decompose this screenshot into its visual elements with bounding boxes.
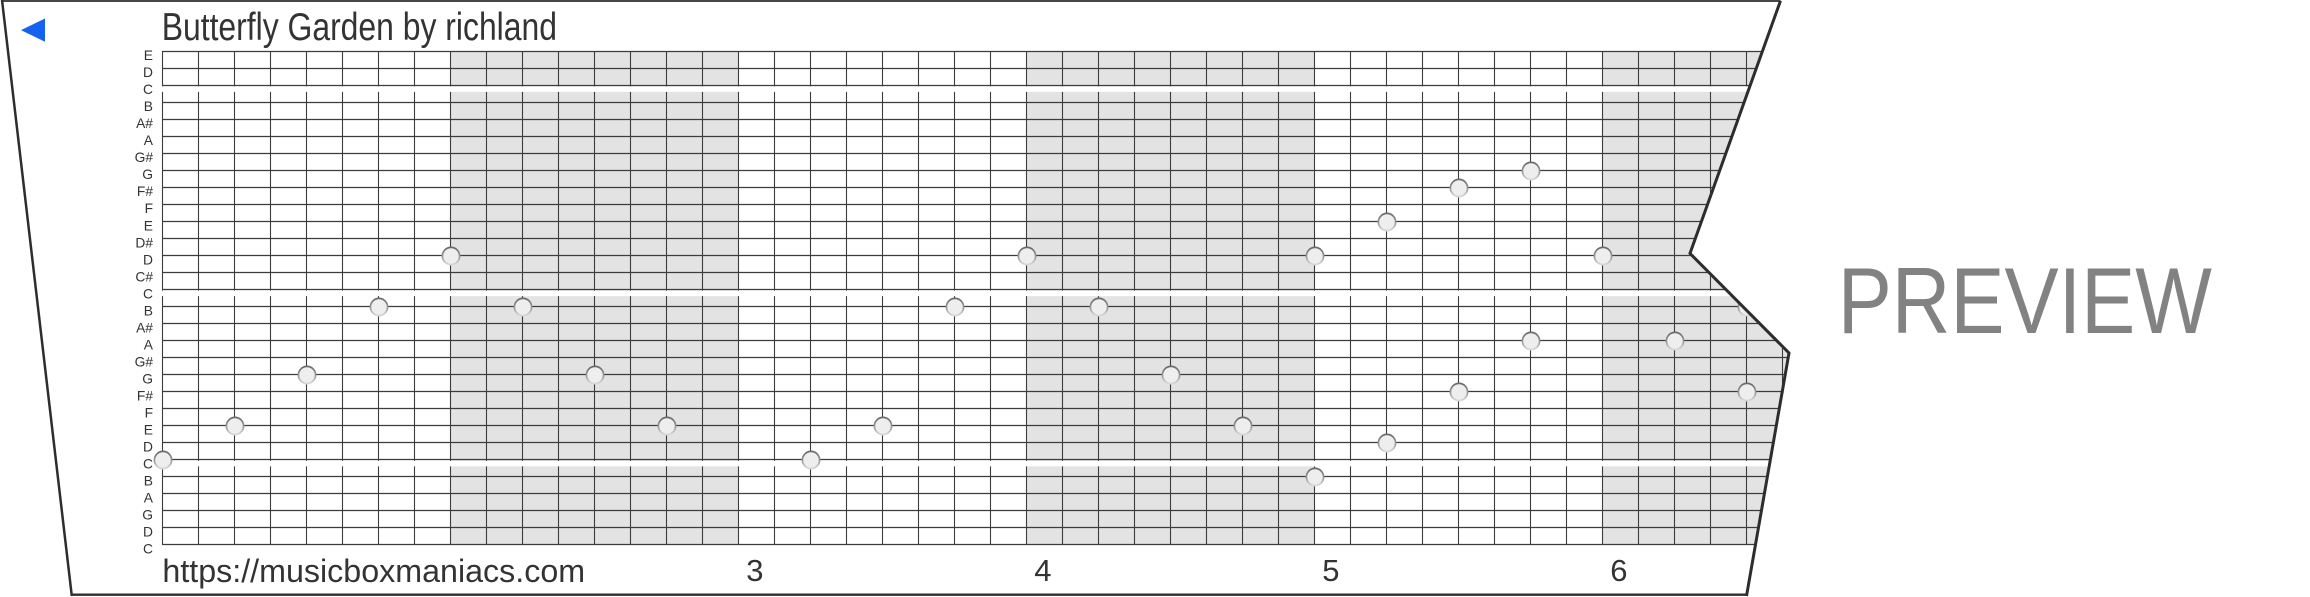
svg-text:A#: A# xyxy=(136,320,153,335)
svg-text:F#: F# xyxy=(137,184,153,199)
svg-text:D: D xyxy=(143,440,153,455)
svg-text:E: E xyxy=(144,218,153,233)
svg-text:C#: C# xyxy=(135,269,153,284)
svg-text:A: A xyxy=(144,337,154,352)
svg-text:Butterfly Garden by richland: Butterfly Garden by richland xyxy=(162,6,557,48)
svg-text:G#: G# xyxy=(135,150,154,165)
svg-text:G: G xyxy=(142,371,153,386)
svg-text:G: G xyxy=(142,508,153,523)
svg-text:C: C xyxy=(143,286,153,301)
svg-text:A: A xyxy=(144,491,154,506)
svg-text:PREVIEW: PREVIEW xyxy=(1838,249,2213,354)
svg-text:A: A xyxy=(144,133,154,148)
svg-text:D: D xyxy=(143,65,153,80)
svg-text:B: B xyxy=(144,303,153,318)
svg-text:6: 6 xyxy=(1610,553,1627,588)
svg-text:D: D xyxy=(143,525,153,540)
svg-text:F: F xyxy=(145,201,153,216)
svg-text:https://musicboxmaniacs.com: https://musicboxmaniacs.com xyxy=(162,553,585,589)
svg-text:F#: F# xyxy=(137,389,153,404)
svg-text:A#: A# xyxy=(136,116,153,131)
svg-text:F: F xyxy=(145,406,153,421)
svg-text:E: E xyxy=(144,48,153,63)
svg-text:3: 3 xyxy=(746,553,763,588)
svg-text:C: C xyxy=(143,542,153,557)
svg-text:D: D xyxy=(143,252,153,267)
svg-text:4: 4 xyxy=(1034,553,1051,588)
svg-text:C: C xyxy=(143,457,153,472)
svg-text:G: G xyxy=(142,167,153,182)
svg-text:E: E xyxy=(144,423,153,438)
svg-text:B: B xyxy=(144,474,153,489)
svg-text:C: C xyxy=(143,82,153,97)
svg-text:G#: G# xyxy=(135,354,154,369)
svg-text:B: B xyxy=(144,99,153,114)
svg-text:D#: D# xyxy=(135,235,153,250)
svg-text:5: 5 xyxy=(1322,553,1339,588)
